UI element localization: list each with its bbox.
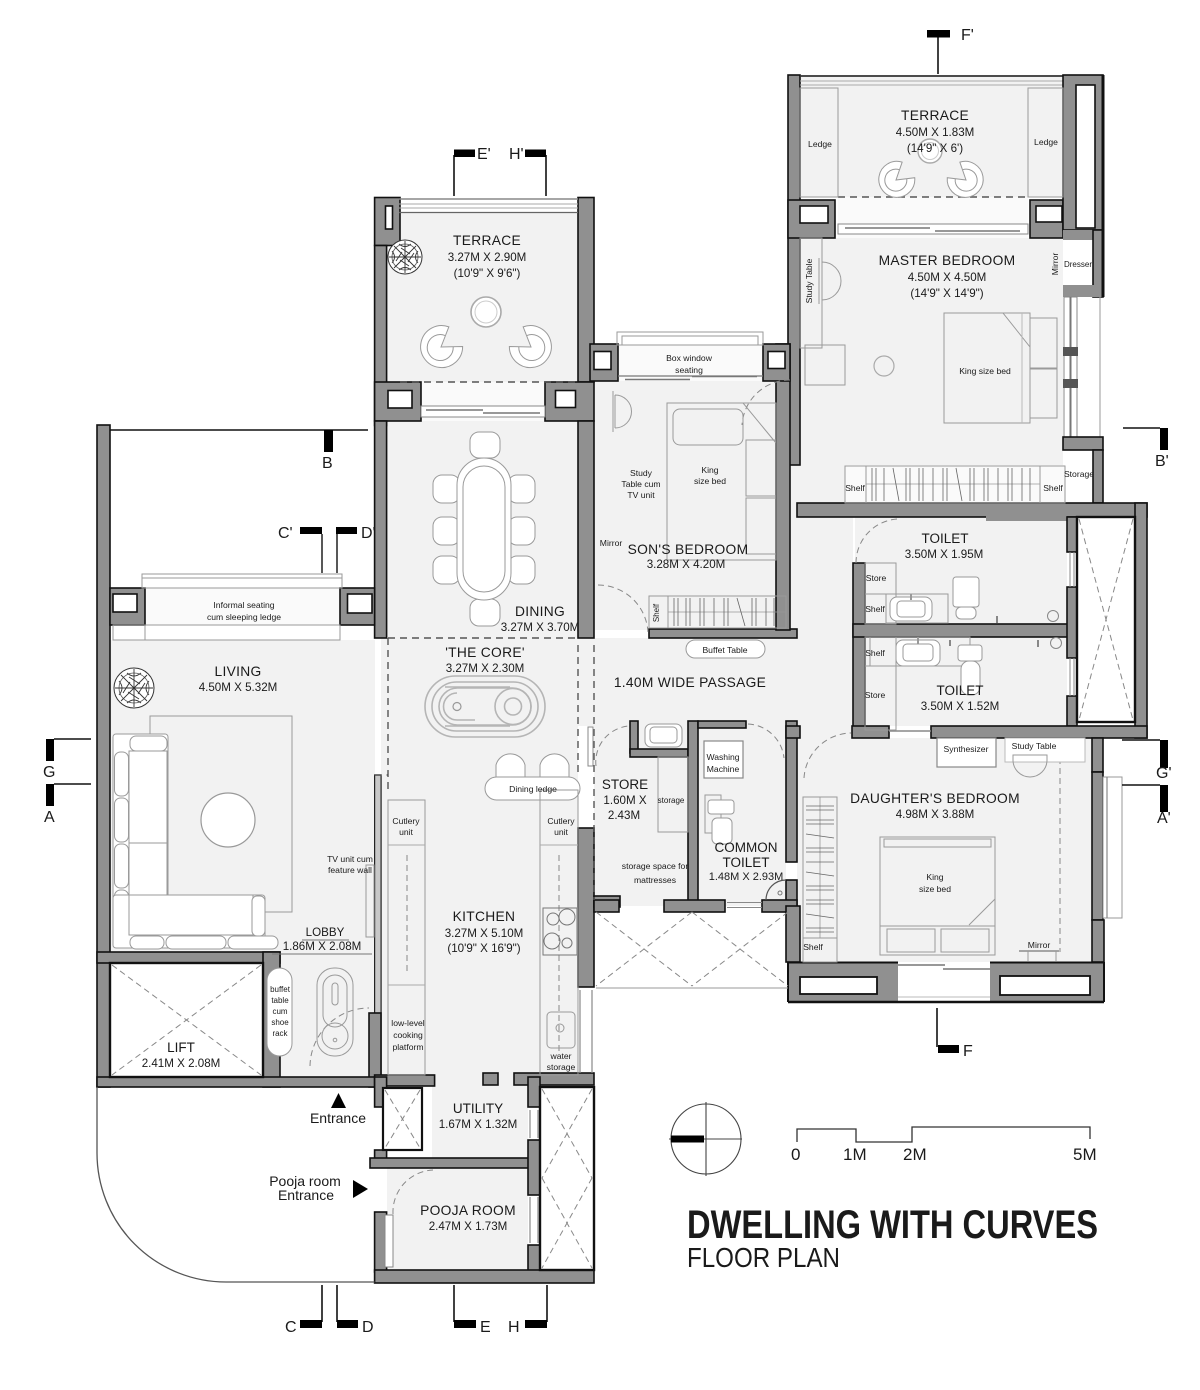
svg-text:Shelf: Shelf	[803, 942, 823, 952]
svg-text:4.50M X 5.32M: 4.50M X 5.32M	[199, 681, 278, 694]
svg-text:5M: 5M	[1073, 1145, 1097, 1164]
svg-text:2M: 2M	[903, 1145, 927, 1164]
svg-text:A': A'	[1157, 810, 1171, 827]
svg-text:rack: rack	[272, 1029, 288, 1038]
svg-text:Shelf: Shelf	[865, 648, 885, 658]
svg-text:FLOOR PLAN: FLOOR PLAN	[687, 1242, 840, 1273]
svg-text:TOILET: TOILET	[722, 855, 769, 870]
svg-text:Cutlery: Cutlery	[547, 816, 575, 826]
svg-text:low-level: low-level	[391, 1018, 425, 1028]
svg-text:DINING: DINING	[515, 604, 565, 619]
svg-text:Shelf: Shelf	[865, 604, 885, 614]
svg-text:Ledge: Ledge	[808, 139, 832, 149]
svg-text:size bed: size bed	[919, 884, 951, 894]
svg-text:Synthesizer: Synthesizer	[944, 744, 989, 754]
svg-text:unit: unit	[399, 827, 413, 837]
svg-text:King size bed: King size bed	[959, 366, 1011, 376]
svg-text:Table cum: Table cum	[621, 479, 660, 489]
svg-text:3.27M X 2.90M: 3.27M X 2.90M	[448, 251, 527, 264]
svg-text:1.60M X: 1.60M X	[603, 794, 646, 807]
svg-text:C': C'	[278, 525, 293, 542]
svg-text:Machine: Machine	[707, 764, 740, 774]
svg-text:TERRACE: TERRACE	[901, 108, 969, 123]
svg-text:Shelf: Shelf	[652, 603, 661, 622]
svg-text:Mirror: Mirror	[600, 538, 623, 548]
svg-text:KITCHEN: KITCHEN	[453, 909, 516, 924]
svg-text:(14'9" X 14'9"): (14'9" X 14'9")	[910, 287, 983, 300]
svg-text:STORE: STORE	[602, 777, 648, 792]
svg-text:F: F	[963, 1043, 973, 1060]
svg-text:Storage: Storage	[1064, 469, 1094, 479]
svg-text:1.67M X 1.32M: 1.67M X 1.32M	[439, 1118, 518, 1131]
svg-text:B: B	[322, 455, 333, 472]
svg-text:COMMON: COMMON	[715, 840, 778, 855]
svg-text:3.28M X 4.20M: 3.28M X 4.20M	[647, 558, 726, 571]
svg-text:0: 0	[791, 1145, 800, 1164]
svg-text:Shelf: Shelf	[845, 483, 865, 493]
svg-text:TOILET: TOILET	[936, 683, 983, 698]
svg-text:3.27M X 5.10M: 3.27M X 5.10M	[445, 927, 524, 940]
svg-text:F': F'	[961, 27, 974, 44]
svg-text:C: C	[285, 1319, 297, 1336]
svg-text:LIVING: LIVING	[214, 664, 261, 679]
svg-text:TERRACE: TERRACE	[453, 233, 521, 248]
svg-text:DAUGHTER'S BEDROOM: DAUGHTER'S BEDROOM	[850, 791, 1020, 806]
svg-text:E': E'	[477, 146, 491, 163]
svg-text:Ledge: Ledge	[1034, 137, 1058, 147]
svg-text:3.27M X 2.30M: 3.27M X 2.30M	[446, 662, 525, 675]
svg-text:King: King	[926, 872, 943, 882]
svg-text:Study Table: Study Table	[1012, 741, 1057, 751]
svg-text:3.27M X 3.70M: 3.27M X 3.70M	[501, 621, 580, 634]
svg-text:1M: 1M	[843, 1145, 867, 1164]
svg-text:Entrance: Entrance	[278, 1187, 334, 1203]
svg-text:TV unit cum: TV unit cum	[327, 854, 373, 864]
svg-text:(10'9" X 9'6"): (10'9" X 9'6")	[454, 267, 521, 280]
svg-text:(14'9" X 6'): (14'9" X 6')	[907, 142, 963, 155]
svg-text:4.50M X 4.50M: 4.50M X 4.50M	[908, 271, 987, 284]
svg-text:Washing: Washing	[706, 752, 739, 762]
svg-text:B': B'	[1155, 453, 1169, 470]
svg-text:4.50M X 1.83M: 4.50M X 1.83M	[896, 126, 975, 139]
svg-text:2.43M: 2.43M	[608, 809, 640, 822]
svg-text:MASTER BEDROOM: MASTER BEDROOM	[879, 253, 1016, 268]
svg-text:3.50M X 1.95M: 3.50M X 1.95M	[905, 548, 984, 561]
svg-text:1.40M WIDE PASSAGE: 1.40M WIDE PASSAGE	[614, 675, 766, 690]
svg-text:Shelf: Shelf	[1043, 483, 1063, 493]
svg-text:platform: platform	[392, 1042, 423, 1052]
svg-text:4.98M X 3.88M: 4.98M X 3.88M	[896, 808, 975, 821]
svg-text:buffet: buffet	[270, 985, 291, 994]
svg-text:SON'S BEDROOM: SON'S BEDROOM	[628, 542, 749, 557]
svg-text:cum: cum	[272, 1007, 287, 1016]
svg-text:King: King	[701, 465, 718, 475]
svg-text:size bed: size bed	[694, 476, 726, 486]
svg-text:TOILET: TOILET	[921, 531, 968, 546]
svg-text:Dresser: Dresser	[1064, 260, 1092, 269]
svg-text:3.50M X 1.52M: 3.50M X 1.52M	[921, 700, 1000, 713]
svg-text:POOJA ROOM: POOJA ROOM	[420, 1203, 516, 1218]
svg-text:DWELLING WITH CURVES: DWELLING WITH CURVES	[687, 1203, 1098, 1247]
svg-text:seating: seating	[675, 365, 703, 375]
svg-text:UTILITY: UTILITY	[453, 1101, 503, 1116]
svg-text:storage space for: storage space for	[622, 861, 689, 871]
svg-text:Mirror: Mirror	[1050, 253, 1060, 276]
svg-text:mattresses: mattresses	[634, 875, 676, 885]
svg-text:'THE CORE': 'THE CORE'	[445, 645, 525, 660]
svg-text:Buffet Table: Buffet Table	[702, 645, 747, 655]
svg-text:water: water	[549, 1051, 571, 1061]
svg-text:cum sleeping ledge: cum sleeping ledge	[207, 612, 281, 622]
svg-text:D: D	[362, 1319, 374, 1336]
svg-text:Informal seating: Informal seating	[213, 600, 274, 610]
svg-text:TV unit: TV unit	[627, 490, 655, 500]
svg-text:1.86M X 2.08M: 1.86M X 2.08M	[283, 940, 362, 953]
svg-text:storage: storage	[658, 796, 685, 805]
svg-text:Dining ledge: Dining ledge	[509, 784, 557, 794]
svg-text:G': G'	[1156, 765, 1172, 782]
svg-text:2.41M X 2.08M: 2.41M X 2.08M	[142, 1057, 221, 1070]
svg-text:Box window: Box window	[666, 353, 713, 363]
svg-text:H': H'	[509, 146, 524, 163]
svg-text:Store: Store	[866, 573, 887, 583]
svg-text:shoe: shoe	[271, 1018, 289, 1027]
svg-text:1.48M X 2.93M: 1.48M X 2.93M	[709, 871, 784, 883]
svg-text:G: G	[43, 764, 55, 781]
svg-text:D': D'	[361, 525, 376, 542]
svg-text:Study Table: Study Table	[804, 258, 814, 303]
svg-text:feature wall: feature wall	[328, 865, 372, 875]
svg-text:storage: storage	[547, 1062, 576, 1072]
svg-text:table: table	[271, 996, 289, 1005]
svg-text:2.47M X 1.73M: 2.47M X 1.73M	[429, 1220, 508, 1233]
svg-text:A: A	[44, 809, 55, 826]
svg-text:LIFT: LIFT	[167, 1040, 195, 1055]
svg-text:E: E	[480, 1319, 491, 1336]
svg-text:Entrance: Entrance	[310, 1110, 366, 1126]
svg-text:H: H	[508, 1319, 520, 1336]
svg-text:cooking: cooking	[393, 1030, 423, 1040]
svg-text:(10'9" X 16'9"): (10'9" X 16'9")	[447, 942, 520, 955]
svg-text:Cutlery: Cutlery	[392, 816, 420, 826]
svg-text:unit: unit	[554, 827, 568, 837]
svg-text:LOBBY: LOBBY	[306, 926, 345, 939]
svg-text:Mirror: Mirror	[1028, 940, 1051, 950]
svg-text:Store: Store	[865, 690, 886, 700]
svg-text:Study: Study	[630, 468, 653, 478]
